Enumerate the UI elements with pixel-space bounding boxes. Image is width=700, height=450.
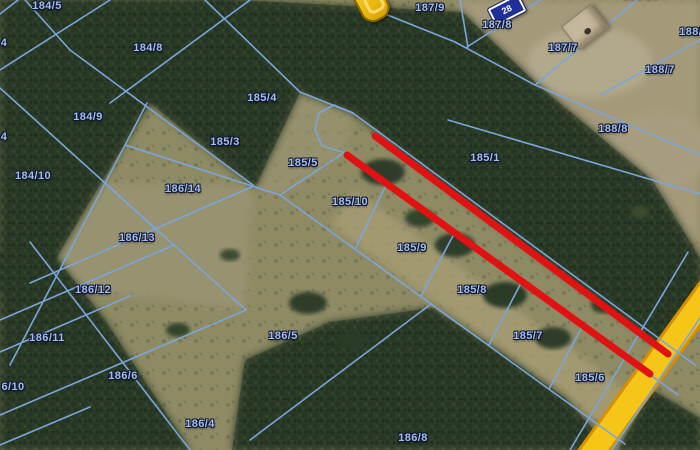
parcel-boundary-line <box>250 304 431 440</box>
roof-dot <box>583 27 592 36</box>
parcel-boundary-line <box>600 40 700 95</box>
parcel-boundary-line <box>25 0 70 50</box>
road <box>580 268 700 450</box>
parcel-boundary-line <box>0 296 130 352</box>
parcel-boundary-line <box>125 145 280 195</box>
parcel-boundary-line <box>280 152 345 195</box>
red-highlight-line <box>375 136 668 354</box>
parcel-boundary-line <box>448 120 700 194</box>
parcel-boundary-line <box>315 105 353 153</box>
parcel-boundary-line <box>205 0 300 92</box>
parcel-boundary-line <box>110 0 250 103</box>
pin-glyph <box>362 0 387 16</box>
cadastral-map-viewport[interactable]: 28 184/5184/8184/9184/10446/10184/7185/4… <box>0 0 700 450</box>
parcel-boundary-line <box>10 103 147 365</box>
parcel-boundary-line <box>460 0 468 47</box>
parcel-boundary-line <box>535 85 700 155</box>
parcel-boundary-line <box>549 325 583 389</box>
parcel-boundaries <box>0 0 700 450</box>
parcel-boundary-line <box>355 183 387 249</box>
parcel-boundary-line <box>421 232 455 296</box>
parcel-boundary-line <box>0 407 90 445</box>
parcel-boundary-line <box>30 186 254 283</box>
parcel-boundary-line <box>70 50 253 185</box>
highlighted-boundary-lines <box>347 136 668 374</box>
parcel-boundary-line <box>0 245 174 320</box>
red-highlight-line <box>347 155 650 374</box>
parcel-boundary-line <box>105 183 246 310</box>
parcel-boundary-line <box>0 0 18 14</box>
parcel-boundary-line <box>489 281 522 345</box>
cadastral-features-layer <box>0 0 700 450</box>
parcel-boundary-line <box>0 0 110 70</box>
